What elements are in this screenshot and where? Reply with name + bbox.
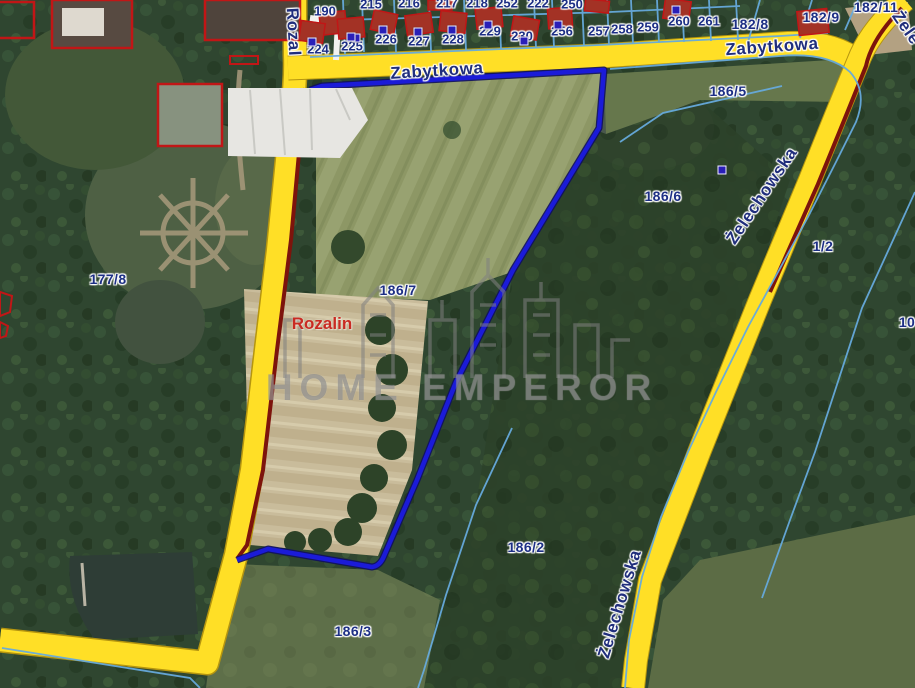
house-number-label: 250	[561, 0, 583, 12]
house-number-label: 258	[611, 22, 633, 37]
house-number-label: 257	[588, 24, 610, 39]
parcel-label: 177/8	[89, 271, 126, 287]
building-marker-icon	[672, 6, 681, 15]
building-marker-icon	[414, 28, 423, 37]
watermark-text: HOME EMPEROR	[266, 367, 658, 409]
house-number-label: 222	[527, 0, 549, 11]
outbuilding	[158, 84, 222, 146]
building-marker-icon	[308, 38, 317, 47]
house-number-label: 260	[668, 14, 690, 29]
parcel-label: 182/11	[854, 0, 898, 15]
building-marker-icon	[718, 166, 727, 175]
house-number-label: 261	[698, 14, 720, 29]
house-number-label: 215	[360, 0, 382, 12]
house-number-label: 252	[496, 0, 518, 11]
house-number-label: 190	[314, 4, 336, 19]
building-marker-icon	[554, 21, 563, 30]
house-number-label: 218	[466, 0, 488, 11]
building-marker-icon	[484, 21, 493, 30]
building-marker-icon	[448, 26, 457, 35]
parcel-label: 182/9	[802, 9, 839, 25]
building-marker-icon	[520, 37, 529, 46]
parcel-label: 186/2	[507, 539, 544, 555]
pond-middle	[115, 280, 205, 364]
building-marker-icon	[379, 26, 388, 35]
white-tent	[228, 88, 368, 158]
map-geometry-layer	[0, 0, 915, 688]
building-marker-icon	[347, 33, 356, 42]
parcel-label: 10	[899, 314, 915, 330]
tree-clump	[331, 230, 365, 264]
parcel-label: 186/7	[379, 282, 416, 298]
house-number-label: 259	[637, 20, 659, 35]
parcel-label: 186/6	[644, 188, 681, 204]
house-number-label: 216	[398, 0, 420, 11]
parcel-label: 1/2	[813, 238, 834, 254]
satellite-map-canvas[interactable]: HOME EMPEROR Rozalin ZabytkowaZabytkowaŻ…	[0, 0, 915, 688]
street-label: Rozal	[282, 7, 305, 56]
pond-bottom	[69, 552, 198, 640]
parcel-label: 186/5	[709, 83, 746, 99]
parcel-label: 186/3	[334, 623, 371, 639]
house-number-label: 217	[436, 0, 458, 11]
place-label-rozalin: Rozalin	[292, 314, 352, 334]
parcel-label: 182/8	[731, 16, 768, 32]
